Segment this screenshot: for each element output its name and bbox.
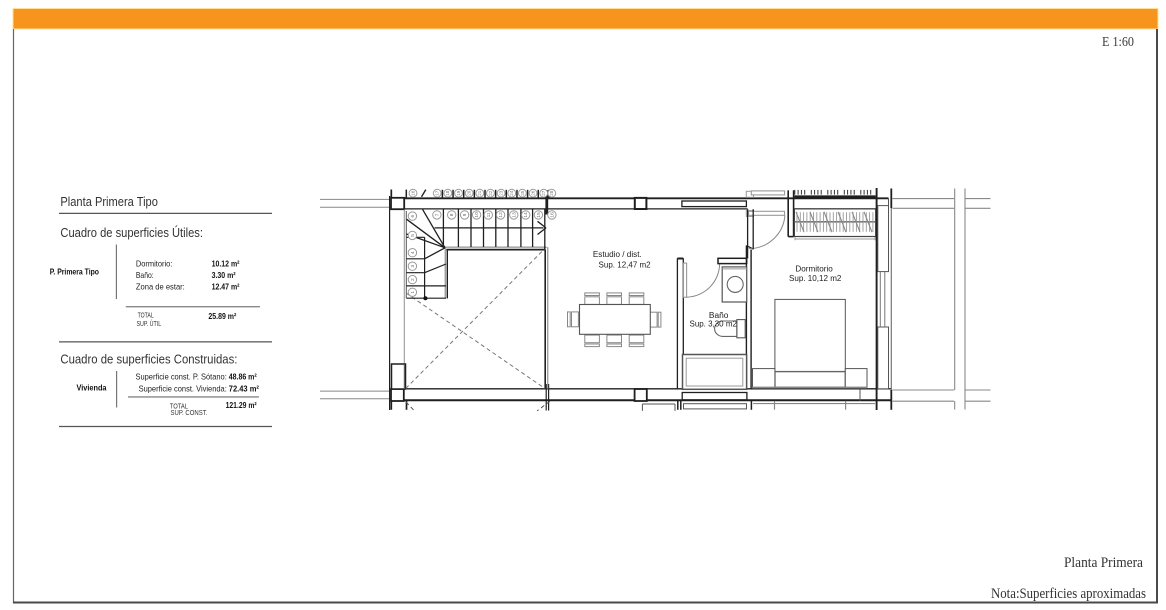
svg-text:P. Primera Tipo: P. Primera Tipo <box>50 268 99 277</box>
svg-text:5: 5 <box>410 234 416 237</box>
svg-text:23: 23 <box>499 190 504 196</box>
svg-text:Cuadro de superficies Útiles:: Cuadro de superficies Útiles: <box>60 225 203 240</box>
svg-text:Sup. 12,47 m2: Sup. 12,47 m2 <box>599 261 652 270</box>
svg-text:21: 21 <box>477 190 482 196</box>
svg-text:22: 22 <box>488 190 493 196</box>
svg-text:11: 11 <box>486 212 492 217</box>
svg-text:Baño: Baño <box>709 311 729 320</box>
svg-text:4: 4 <box>410 251 416 254</box>
svg-text:17: 17 <box>435 190 440 196</box>
svg-text:28: 28 <box>549 190 554 196</box>
svg-text:3.30 m²: 3.30 m² <box>212 271 236 280</box>
svg-text:14: 14 <box>523 212 529 218</box>
svg-text:Dormitorio: Dormitorio <box>795 265 833 274</box>
svg-text:6: 6 <box>410 214 416 217</box>
svg-text:Planta Primera Tipo: Planta Primera Tipo <box>60 195 158 209</box>
svg-text:12.47 m²: 12.47 m² <box>212 282 240 291</box>
svg-text:12: 12 <box>498 212 504 218</box>
svg-text:10: 10 <box>474 212 480 218</box>
svg-text:1: 1 <box>410 291 416 294</box>
svg-text:25.89 m²: 25.89 m² <box>208 312 236 321</box>
svg-text:72.43 m²: 72.43 m² <box>229 384 259 393</box>
svg-text:Nota:Superficies aproximadas: Nota:Superficies aproximadas <box>991 586 1146 602</box>
svg-text:8: 8 <box>449 213 455 216</box>
svg-text:20: 20 <box>467 190 472 196</box>
svg-text:Planta Primera: Planta Primera <box>1064 555 1144 571</box>
svg-text:Estudio / dist.: Estudio / dist. <box>593 250 642 259</box>
svg-text:9: 9 <box>462 213 468 216</box>
svg-text:121.29 m²: 121.29 m² <box>226 401 257 410</box>
svg-text:Sup. 3,30 m2: Sup. 3,30 m2 <box>690 320 738 329</box>
svg-text:Zona de estar:: Zona de estar: <box>136 282 185 291</box>
svg-text:19: 19 <box>456 190 461 196</box>
svg-text:48.86 m²: 48.86 m² <box>229 373 257 382</box>
svg-text:Vivienda: Vivienda <box>77 383 107 392</box>
svg-text:15: 15 <box>536 212 542 218</box>
svg-text:3: 3 <box>410 265 416 268</box>
svg-text:13: 13 <box>511 212 517 218</box>
svg-text:24: 24 <box>509 190 514 196</box>
svg-text:10.12 m²: 10.12 m² <box>212 259 240 268</box>
svg-text:16: 16 <box>410 190 415 196</box>
svg-text:Dormitorio:: Dormitorio: <box>136 259 173 268</box>
svg-text:Baño:: Baño: <box>136 271 154 280</box>
svg-text:Sup. 10,12 m2: Sup. 10,12 m2 <box>789 274 842 283</box>
svg-text:18: 18 <box>445 190 450 196</box>
svg-text:Superficie const. Vivienda:: Superficie const. Vivienda: <box>139 384 227 393</box>
svg-text:Cuadro de superficies Construi: Cuadro de superficies Construidas: <box>60 352 237 367</box>
svg-text:27: 27 <box>541 190 546 196</box>
svg-text:TOTAL: TOTAL <box>138 311 154 320</box>
svg-text:7: 7 <box>434 213 440 216</box>
svg-text:Superficie const. P. Sótano:: Superficie const. P. Sótano: <box>136 373 227 382</box>
svg-text:2: 2 <box>410 278 416 281</box>
svg-text:E 1:60: E 1:60 <box>1102 34 1134 49</box>
svg-text:26: 26 <box>530 190 535 196</box>
svg-text:16: 16 <box>549 212 555 218</box>
svg-text:25: 25 <box>520 190 525 196</box>
svg-text:SUP. ÚTIL: SUP. ÚTIL <box>137 319 162 328</box>
svg-text:SUP. CONST.: SUP. CONST. <box>171 408 208 417</box>
